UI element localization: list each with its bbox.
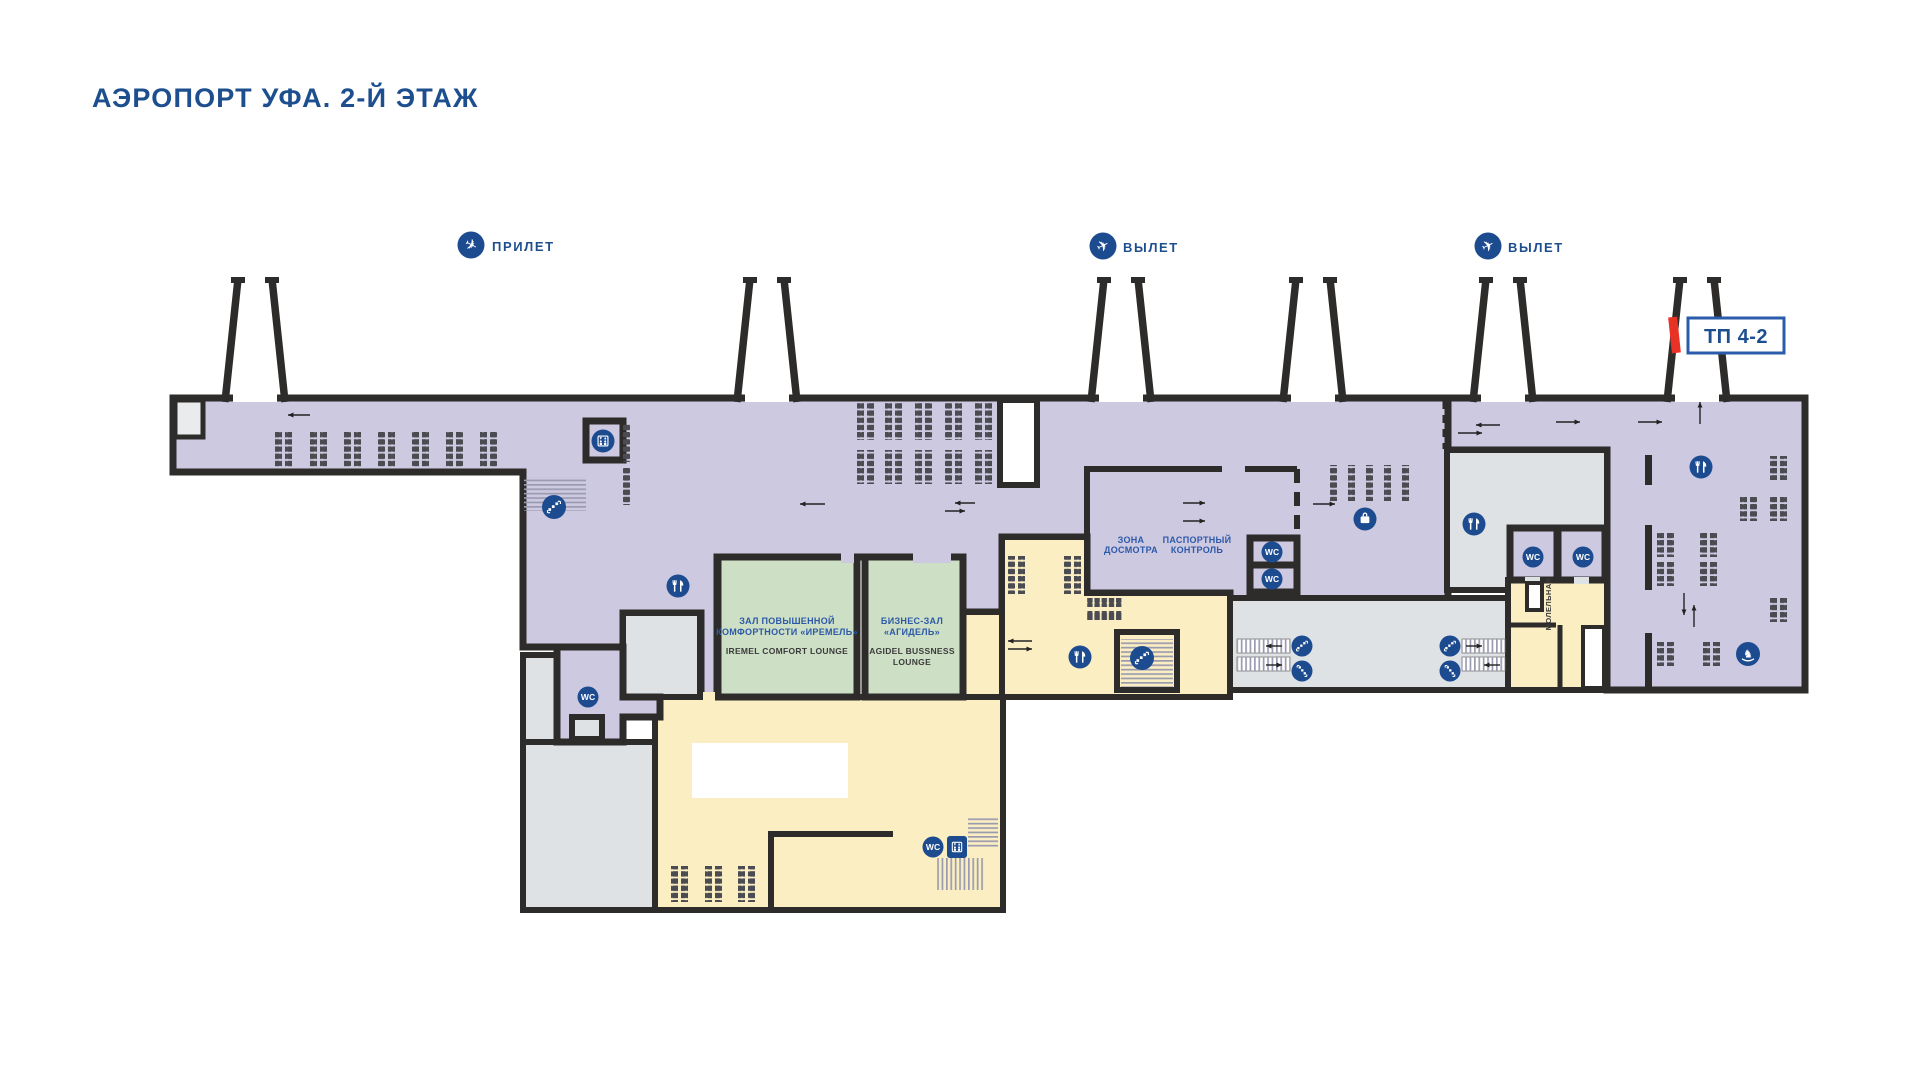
plane-takeoff-icon: ✈ [1090, 233, 1117, 260]
wc-icon: WC [1523, 547, 1544, 568]
bridge-door-gap [1291, 392, 1335, 402]
restaurant-icon [1069, 646, 1092, 669]
bench-row [681, 866, 688, 902]
bench-row [975, 403, 982, 440]
bench-row [1087, 598, 1123, 607]
svg-text:WC: WC [1265, 547, 1279, 557]
restaurant-icon [1690, 456, 1713, 479]
svg-text:«АГИДЕЛЬ»: «АГИДЕЛЬ» [884, 627, 940, 637]
floor-plan-canvas: ✈ ✈ ✈ ♞ WC WC WC WC WC [0, 0, 1920, 1080]
zone-gray-room-large [523, 742, 655, 910]
bench-row [1667, 562, 1674, 586]
bench-row [748, 866, 755, 902]
bench-row [1657, 533, 1664, 557]
bench-row [310, 431, 317, 467]
svg-text:КОМФОРТНОСТИ «ИРЕМЕЛЬ»: КОМФОРТНОСТИ «ИРЕМЕЛЬ» [716, 627, 858, 637]
bridge-side [1091, 279, 1104, 402]
bridge-side [1520, 279, 1533, 402]
zone-gray-room-narrow [523, 655, 557, 742]
bench-row [857, 403, 864, 440]
bench-row [715, 866, 722, 902]
svg-text:AGIDEL BUSSNESS: AGIDEL BUSSNESS [869, 646, 955, 656]
bench-row [895, 403, 902, 440]
bench-row [275, 431, 282, 467]
bench-row [1710, 562, 1717, 586]
bench-row [1750, 497, 1757, 521]
bench-row [456, 431, 463, 467]
bench-row [1710, 533, 1717, 557]
wc-icon: WC [1573, 547, 1594, 568]
bench-row [955, 403, 962, 440]
departures-label-right: ВЫЛЕТ [1508, 240, 1564, 255]
jet-bridges [225, 279, 1727, 402]
bridge-side [784, 279, 797, 402]
bench-row [915, 450, 922, 484]
svg-text:WC: WC [926, 842, 940, 852]
bench-row [1074, 556, 1081, 594]
wc-icon: WC [923, 837, 944, 858]
prayer-room-label: МОЛЕЛЬНАЯ [1544, 578, 1553, 631]
bridge-side [225, 279, 238, 402]
bench-row [1008, 556, 1015, 594]
bench-row [1740, 497, 1747, 521]
bench-row [623, 467, 630, 505]
bench-row [705, 866, 712, 902]
svg-text:БИЗНЕС-ЗАЛ: БИЗНЕС-ЗАЛ [881, 616, 943, 626]
bench-row [1780, 456, 1787, 480]
bench-row [378, 431, 385, 467]
svg-text:♞: ♞ [1743, 648, 1753, 661]
bench-row [867, 403, 874, 440]
bench-row [985, 403, 992, 440]
kids-play-icon: ♞ [1736, 642, 1760, 666]
bench-row [344, 431, 351, 467]
bridge-door-gap [1481, 392, 1525, 402]
escalator-icon [1130, 646, 1154, 670]
airport-floor-plan-page: ✈ ✈ ✈ ♞ WC WC WC WC WC [0, 0, 1920, 1080]
bridge-side [1138, 279, 1151, 402]
bench-row [1770, 456, 1777, 480]
bench-row [1703, 642, 1710, 666]
zone-gray-room-mid [623, 613, 700, 697]
zone-gray-room-small [572, 717, 602, 739]
bench-row [1064, 556, 1071, 594]
bench-row [885, 403, 892, 440]
bench-row [738, 866, 745, 902]
bench-row [955, 450, 962, 484]
bench-row [1330, 465, 1337, 501]
arrivals-label: ПРИЛЕТ [492, 239, 555, 254]
bench-row [446, 431, 453, 467]
room-corridor-end [175, 400, 203, 437]
bench-row [1657, 562, 1664, 586]
gate-sign: ТП 4-2 [1688, 318, 1784, 353]
elevator-icon [947, 836, 967, 858]
svg-text:ЗАЛ ПОВЫШЕННОЙ: ЗАЛ ПОВЫШЕННОЙ [739, 615, 835, 626]
svg-text:WC: WC [1526, 552, 1540, 562]
bench-row [985, 450, 992, 484]
bench-row [422, 431, 429, 467]
svg-text:WC: WC [581, 692, 595, 702]
bench-row [1657, 642, 1664, 666]
bench-row [623, 424, 630, 462]
luggage-icon [1354, 508, 1377, 531]
svg-text:ДОСМОТРА: ДОСМОТРА [1104, 545, 1158, 555]
bridge-door-gap [1099, 392, 1143, 402]
svg-text:ПАСПОРТНЫЙ: ПАСПОРТНЫЙ [1163, 534, 1232, 545]
bench-row [1348, 465, 1355, 501]
bench-row [320, 431, 327, 467]
bridge-side [1283, 279, 1296, 402]
escalator-icon [1292, 636, 1313, 657]
bridge-side [272, 279, 285, 402]
bench-row [1780, 497, 1787, 521]
bench-row [915, 403, 922, 440]
zone-waiting-yellow-link [963, 612, 1002, 697]
bench-row [671, 866, 678, 902]
passport-control-label: ПАСПОРТНЫЙ КОНТРОЛЬ [1163, 534, 1232, 555]
escalator-icon [542, 495, 566, 519]
bench-row [975, 450, 982, 484]
bench-row [490, 431, 497, 467]
bridge-side [737, 279, 750, 402]
bench-row [895, 450, 902, 484]
bench-row [1713, 642, 1720, 666]
bench-row [867, 450, 874, 484]
svg-text:ТП 4-2: ТП 4-2 [1704, 326, 1768, 348]
svg-text:IREMEL COMFORT LOUNGE: IREMEL COMFORT LOUNGE [726, 646, 848, 656]
wc-icon: WC [1262, 542, 1283, 563]
plane-takeoff-icon: ✈ [1475, 233, 1502, 260]
bench-row [945, 450, 952, 484]
bench-row [1770, 497, 1777, 521]
bench-row [480, 431, 487, 467]
bench-row [1402, 465, 1409, 501]
bench-row [1087, 611, 1123, 620]
escalator-icon [1440, 661, 1461, 682]
bench-row [1366, 465, 1373, 501]
escalator-icon [1292, 661, 1313, 682]
bridge-side [1473, 279, 1486, 402]
bench-row [1018, 556, 1025, 594]
page-title: АЭРОПОРТ УФА. 2-Й ЭТАЖ [92, 82, 479, 113]
bench-row [885, 450, 892, 484]
svg-text:ЗОНА: ЗОНА [1118, 535, 1145, 545]
bench-row [1700, 533, 1707, 557]
restaurant-icon [667, 575, 690, 598]
bridge-door-gap [233, 392, 277, 402]
bridge-door-gap [745, 392, 789, 402]
svg-text:WC: WC [1265, 574, 1279, 584]
bench-row [857, 450, 864, 484]
bench-row [1770, 598, 1777, 622]
wc-icon: WC [578, 687, 599, 708]
bench-row [412, 431, 419, 467]
bench-row [1667, 533, 1674, 557]
bench-row [388, 431, 395, 467]
svg-text:WC: WC [1576, 552, 1590, 562]
bench-row [354, 431, 361, 467]
bench-row [1667, 642, 1674, 666]
bench-row [1780, 598, 1787, 622]
plane-landing-icon: ✈ [458, 232, 485, 259]
elevator-icon [592, 430, 615, 453]
bench-row [1700, 562, 1707, 586]
svg-text:LOUNGE: LOUNGE [893, 657, 931, 667]
bridge-door-gap [1675, 392, 1719, 402]
svg-text:КОНТРОЛЬ: КОНТРОЛЬ [1171, 545, 1224, 555]
wc-icon: WC [1262, 569, 1283, 590]
bench-row [925, 403, 932, 440]
bridge-side [1330, 279, 1343, 402]
bench-row [945, 403, 952, 440]
bench-row [925, 450, 932, 484]
bench-row [285, 431, 292, 467]
escalator-icon [1440, 636, 1461, 657]
restaurant-icon [1463, 513, 1486, 536]
bench-row [1384, 465, 1391, 501]
departures-label-left: ВЫЛЕТ [1123, 240, 1179, 255]
